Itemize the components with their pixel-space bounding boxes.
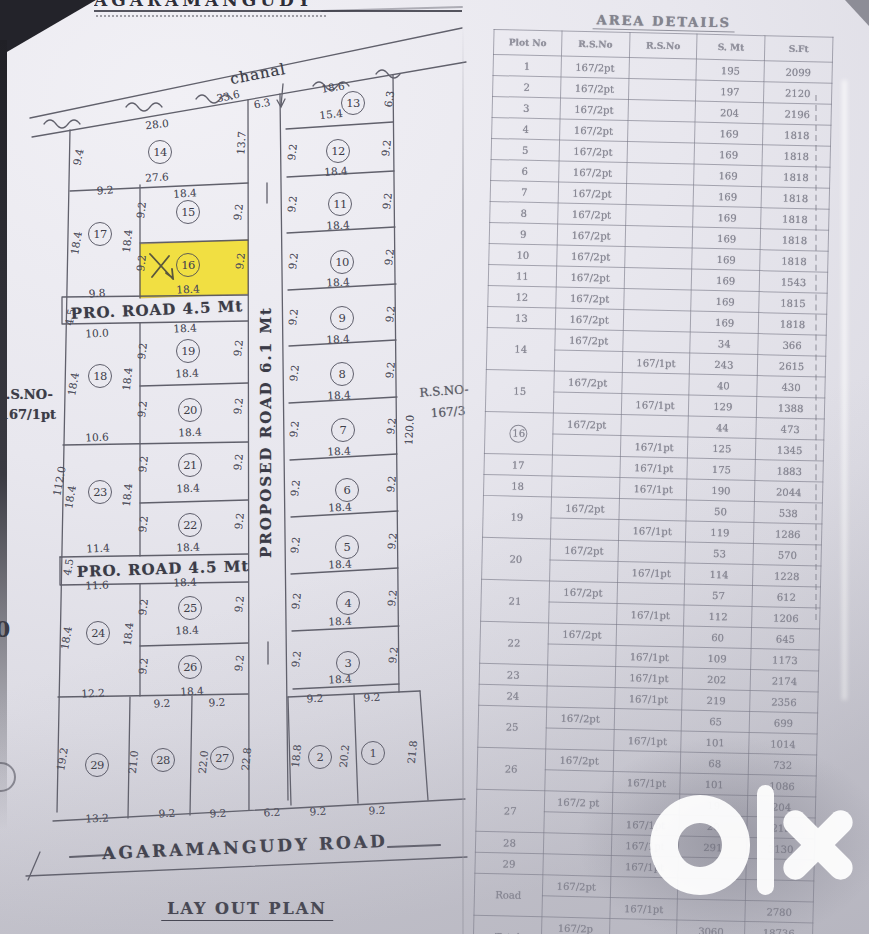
column-header: R.S.No: [561, 31, 629, 58]
plot-number-9: 9: [330, 306, 354, 330]
column-header: Plot No: [493, 30, 561, 57]
dimension-label: 18.4: [178, 425, 202, 438]
plot-number-13: 13: [341, 91, 365, 115]
dimension-label: 18.8: [289, 744, 303, 769]
dimension-label: 18.4: [326, 332, 350, 345]
plot-number-7: 7: [331, 418, 355, 442]
cell-plot-no: 19: [483, 495, 552, 539]
dimension-label: 9.2: [363, 691, 380, 704]
cell-sft: 1228: [753, 565, 821, 588]
dimension-label: 6.3: [382, 90, 396, 108]
cell-rs1: [625, 226, 693, 249]
cell-rs2: 167/2pt: [558, 161, 626, 184]
dimension-label: 9.2: [231, 397, 245, 415]
cell-plot-no: 4: [492, 117, 560, 140]
cell-plot-no: 29: [475, 852, 543, 875]
plot-number-6: 6: [335, 478, 359, 502]
plot-number-25: 25: [178, 596, 202, 620]
dimension-label: 21.8: [405, 740, 419, 765]
cell-rs2: 167/2pt: [559, 119, 627, 142]
cell-sft: 1206: [752, 607, 820, 630]
cell-rs1: [627, 142, 695, 165]
cell-sft: 1818: [761, 208, 829, 231]
dimension-label: 9.2: [385, 532, 399, 550]
cell-sft: 1818: [762, 145, 830, 168]
dimension-label: 18.4: [326, 275, 350, 288]
cell-rs1: [628, 79, 696, 102]
cell-rs2: 167/2pt: [550, 539, 618, 562]
cell-rs2: 167/2pt: [555, 308, 623, 331]
dimension-label: 10.6: [85, 430, 109, 443]
cell-smt: 169: [694, 143, 762, 166]
top-title-underline: [96, 15, 326, 17]
cell-plot-no: 7: [490, 180, 558, 203]
cell-rs2: 167/2pt: [559, 140, 627, 163]
cell-plot-no: 28: [475, 831, 543, 854]
dimension-label: 28.0: [145, 117, 170, 131]
cell-rs1: [616, 624, 684, 647]
cell-smt: 243: [690, 353, 758, 376]
plot-number-12: 12: [326, 139, 350, 163]
dimension-label: 9.2: [208, 696, 225, 709]
cell-smt: 219: [682, 689, 750, 712]
column-header: S.Ft: [765, 36, 833, 63]
dimension-label: 11.4: [86, 541, 110, 554]
dimension-label: 9.2: [285, 195, 299, 213]
plot-number-18: 18: [88, 364, 112, 388]
rs-no-left-line1: R.S.NO-: [0, 387, 53, 402]
cell-rs2: 167/2pt: [560, 77, 628, 100]
dimension-label: 9.2: [384, 417, 398, 435]
cell-rs2: 167/2pt: [549, 581, 617, 604]
dimension-label: 9.2: [231, 453, 245, 471]
cell-plot-no: 20: [482, 537, 551, 581]
cell-sft: 1173: [751, 649, 819, 672]
cell-smt: 112: [684, 605, 752, 628]
plot-number-1: 1: [361, 741, 385, 765]
cell-smt: 195: [696, 59, 764, 82]
cell-plot-no: 21: [481, 579, 550, 623]
dimension-label: 18.4: [328, 614, 352, 627]
cell-rs1: [620, 414, 688, 437]
dimension-label: 27.6: [145, 170, 169, 184]
cell-sft: 1883: [755, 460, 823, 483]
cell-plot-no: Road: [474, 873, 543, 917]
cell-rs2: 167/2pt: [548, 623, 616, 646]
cell-rs1: 167/1pt: [614, 687, 682, 710]
cell-plot-no: 9: [489, 222, 557, 245]
cell-rs1: [619, 498, 687, 521]
cell-rs2: [553, 392, 621, 415]
cell-rs1: 167/1pt: [618, 519, 686, 542]
dimension-label: 6.2: [263, 806, 280, 819]
cell-rs1: 167/1pt: [616, 603, 684, 626]
cell-smt: 169: [693, 206, 761, 229]
cell-smt: 197: [696, 80, 764, 103]
plot-number-14: 14: [148, 140, 172, 164]
cell-rs2: [551, 476, 619, 499]
cell-rs2: [549, 560, 617, 583]
dimension-label: 9.2: [309, 805, 326, 818]
cell-smt: 114: [685, 563, 753, 586]
cell-sft: 2099: [764, 61, 832, 84]
cell-smt: 119: [686, 521, 754, 544]
cell-smt: 34: [690, 332, 758, 355]
plot-number-29: 29: [85, 753, 109, 777]
cell-plot-no: 24: [479, 684, 547, 707]
cell-rs2: 167/2pt: [557, 245, 625, 268]
plot-number-10: 10: [330, 250, 354, 274]
dimension-label: 9.2: [383, 305, 397, 323]
dimension-label: 9.2: [386, 646, 400, 664]
cell-smt: 50: [686, 500, 754, 523]
cell-rs1: [623, 310, 691, 333]
cell-smt: 169: [691, 290, 759, 313]
cell-rs2: [552, 455, 620, 478]
cell-plot-no: 25: [478, 705, 547, 749]
cell-sft: 645: [751, 628, 819, 651]
cell-sft: 2120: [764, 82, 832, 105]
cell-sft: 1818: [762, 166, 830, 189]
cut-off-top-title: AGARAMANGUDY: [94, 0, 462, 13]
dimension-label: 9.2: [382, 248, 396, 266]
cell-smt: 60: [683, 626, 751, 649]
cell-rs1: [621, 372, 689, 395]
cell-rs1: [626, 163, 694, 186]
cell-sft: 1818: [760, 229, 828, 252]
dimension-label: 9.2: [287, 364, 301, 382]
cell-rs1: [617, 582, 685, 605]
dimension-label: 9.2: [287, 420, 301, 438]
cell-rs1: 167/1pt: [619, 477, 687, 500]
cell-plot-no: 12: [488, 285, 556, 308]
cell-rs1: [622, 331, 690, 354]
dimension-label: 9.2: [232, 512, 246, 530]
cell-rs2: [550, 518, 618, 541]
plot-number-15: 15: [176, 200, 200, 224]
cell-plot-no: 1: [493, 54, 561, 77]
cell-smt: 125: [688, 437, 756, 460]
cell-rs1: [624, 268, 692, 291]
cell-plot-no: 22: [480, 621, 549, 665]
dimension-label: 9.2: [286, 308, 300, 326]
dimension-label: 9.2: [368, 804, 385, 817]
dimension-label: 9.2: [96, 183, 113, 196]
layout-plan-title: LAY OUT PLAN: [161, 899, 333, 921]
cell-plot-no: 27: [476, 789, 545, 833]
cell-smt: 129: [689, 395, 757, 418]
cell-rs2: 167/2pt: [556, 287, 624, 310]
cell-plot-no: 2: [493, 75, 561, 98]
proposed-road-label: PROPOSED ROAD 6.1 Mt: [257, 306, 275, 558]
plot-number-2: 2: [308, 745, 332, 769]
plot-number-21: 21: [178, 453, 202, 477]
top-title-text: AGARAMANGUDY: [94, 0, 462, 12]
cell-plot-no: 6: [491, 159, 559, 182]
dimension-label: 9.2: [306, 692, 323, 705]
dimension-label: 9.2: [136, 598, 150, 616]
cell-rs2: 167/2pt: [546, 707, 614, 730]
cell-smt: 169: [692, 269, 760, 292]
cell-smt: 169: [693, 227, 761, 250]
cell-rs1: [623, 289, 691, 312]
dimension-label: 9.2: [134, 254, 148, 272]
dimension-label: 9.2: [288, 479, 302, 497]
cell-sft: 1345: [756, 439, 824, 462]
plot-number-16: 16: [176, 253, 200, 277]
dimension-label: 22.0: [196, 750, 210, 775]
cell-smt: 57: [684, 584, 752, 607]
cell-plot-no: 11: [488, 264, 556, 287]
dimension-label: 9.2: [232, 595, 246, 613]
dimension-label: 13.7: [234, 131, 248, 155]
cell-smt: 204: [695, 101, 763, 124]
page-edge-highlight: [842, 80, 847, 700]
cell-plot-no: 8: [490, 201, 558, 224]
cell-rs2: 167/2pt: [556, 266, 624, 289]
page-fold-crease: [462, 22, 464, 934]
cell-rs1: [626, 184, 694, 207]
rs-no-right-line2: 167/3: [430, 404, 465, 420]
cell-rs1: 167/1pt: [620, 456, 688, 479]
cell-smt: 109: [683, 647, 751, 670]
plot-number-23: 23: [88, 480, 112, 504]
cell-rs2: 167/2pt: [554, 371, 622, 394]
cell-sft: 612: [752, 586, 820, 609]
cell-rs2: 167/2pt: [561, 56, 629, 79]
dimension-label: 9.2: [136, 515, 150, 533]
dimension-label: 18.4: [324, 164, 348, 178]
cell-smt: 175: [687, 458, 755, 481]
cell-rs1: 167/1pt: [621, 393, 689, 416]
dimension-label: 18.4: [120, 229, 134, 254]
dimension-label: 9.2: [233, 252, 247, 270]
cell-rs1: [628, 100, 696, 123]
cell-rs1: 167/1pt: [620, 435, 688, 458]
cell-smt: 65: [682, 710, 750, 733]
cell-smt: 44: [688, 416, 756, 439]
cell-sft: 1818: [760, 250, 828, 273]
plot-number-8: 8: [330, 362, 354, 386]
dimension-label: 9.2: [231, 339, 245, 357]
dimension-label: 9.2: [232, 654, 246, 672]
dimension-label: 18.4: [176, 282, 200, 295]
plot-number-28: 28: [151, 748, 175, 772]
dimension-label: 18.4: [327, 444, 351, 457]
plot-number-26: 26: [178, 655, 202, 679]
cell-plot-no: 26: [477, 747, 546, 791]
dimension-label: 9.2: [285, 143, 299, 161]
cell-smt: 169: [695, 122, 763, 145]
dimension-label: 9.2: [135, 342, 149, 360]
plot-number-27: 27: [210, 746, 234, 770]
cell-plot-no: 3: [492, 96, 560, 119]
cell-plot-no: 16: [484, 411, 553, 455]
cell-rs1: [624, 247, 692, 270]
cell-rs1: 167/1pt: [615, 666, 683, 689]
plot-number-3: 3: [336, 651, 360, 675]
dimension-label: 21.0: [126, 750, 140, 775]
circled-plot-no: 16: [510, 424, 528, 442]
cell-rs2: [547, 686, 615, 709]
plot-number-20: 20: [178, 398, 202, 422]
cell-sft: 2196: [763, 103, 831, 126]
cell-sft: 570: [753, 544, 821, 567]
dimension-label: 20.2: [337, 744, 351, 769]
cell-rs2: 167/2pt: [558, 182, 626, 205]
dimension-label: 10.0: [85, 326, 109, 339]
rs-no-left-line2: 167/1pt: [0, 407, 56, 422]
dimension-label: 18.4: [328, 557, 352, 570]
dimension-label: 9.2: [380, 192, 394, 210]
plot-number-4: 4: [336, 591, 360, 615]
olx-watermark-icon: [645, 783, 860, 908]
cell-plot-no: 15: [485, 369, 554, 413]
dimension-label: 18.4: [176, 540, 200, 553]
dimension-label: 18.4: [176, 481, 200, 494]
dimension-label: 22.8: [239, 747, 253, 772]
dimension-label: 9.2: [379, 139, 393, 157]
cell-rs2: [552, 434, 620, 457]
cell-rs1: [618, 540, 686, 563]
dimension-label: 9.2: [288, 536, 302, 554]
cell-sft: 1286: [754, 523, 822, 546]
dimension-label: 18.4: [175, 366, 199, 379]
cell-plot-no: 17: [484, 453, 552, 476]
cell-rs2: 167/2pt: [555, 329, 623, 352]
cell-rs2: [547, 644, 615, 667]
cell-rs1: [625, 205, 693, 228]
plot-number-11: 11: [328, 192, 352, 216]
cell-rs1: [627, 121, 695, 144]
dimension-label: 9.2: [231, 203, 245, 221]
dimension-label: 9.2: [383, 361, 397, 379]
plot-number-24: 24: [86, 621, 110, 645]
plot-number-17: 17: [88, 222, 112, 246]
cell-sft: 1543: [759, 271, 827, 294]
dimension-label: 9.2: [289, 592, 303, 610]
cell-sft: 538: [754, 502, 822, 525]
dimension-label: 9.2: [289, 650, 303, 668]
dimension-label: 9.2: [385, 589, 399, 607]
dimension-label: 18.4: [327, 388, 351, 401]
dimension-label: 18.4: [328, 500, 352, 513]
dimension-label: 12.2: [81, 686, 105, 699]
dimension-label: 9.2: [209, 807, 226, 820]
cell-smt: 40: [689, 374, 757, 397]
cell-rs2: [554, 350, 622, 373]
column-header: S. Mt: [697, 34, 765, 61]
dimension-label: 9.2: [158, 807, 175, 820]
dimension-label: 9.2: [136, 657, 150, 675]
dimension-label: 9.2: [153, 697, 170, 710]
cell-rs2: 167/2pt: [553, 413, 621, 436]
scanned-layout-plan-page: 28.027.69.413.733.66.318.615.46.39.29.21…: [0, 0, 869, 934]
cell-plot-no: 23: [479, 663, 547, 686]
plot-number-5: 5: [335, 535, 359, 559]
cell-rs2: [547, 665, 615, 688]
cell-rs2: [548, 602, 616, 625]
cell-plot-no: 10: [489, 243, 557, 266]
cell-sft: 1818: [761, 187, 829, 210]
dimension-label: 18.4: [175, 623, 199, 636]
dimension-label: 13.2: [85, 811, 109, 824]
cell-smt: 169: [693, 185, 761, 208]
cell-rs2: 167/2pt: [551, 497, 619, 520]
cell-smt: 53: [685, 542, 753, 565]
cell-rs1: [629, 58, 697, 81]
cell-sft: 1818: [763, 124, 831, 147]
dimension-label: 9.2: [136, 455, 150, 473]
cell-plot-no: Total: [473, 915, 542, 934]
dimension-label: 15.4: [319, 107, 344, 121]
dimension-label: 18.4: [180, 684, 204, 697]
plot-number-22: 22: [178, 513, 202, 537]
page-margin-dashes: [815, 95, 817, 620]
cell-smt: 169: [692, 248, 760, 271]
cell-smt: 169: [691, 311, 759, 334]
cell-plot-no: 5: [491, 138, 559, 161]
cell-rs1: [614, 708, 682, 731]
dimension-label: 18.4: [173, 321, 197, 334]
cell-smt: 190: [687, 479, 755, 502]
dimension-label: 9.2: [134, 201, 148, 219]
dimension-label: 18.4: [173, 186, 197, 200]
dimension-label: 9.8: [88, 286, 105, 299]
dimension-label: 9.2: [384, 475, 398, 493]
cell-rs2: 167/2pt: [557, 203, 625, 226]
cell-rs1: 167/1pt: [622, 352, 690, 375]
dimension-label: 18.4: [120, 367, 134, 392]
cell-plot-no: 14: [486, 327, 555, 371]
photo-edge-shadow: [0, 40, 7, 830]
cell-sft: 2044: [755, 481, 823, 504]
column-header: R.S.No: [629, 33, 697, 60]
plot-number-19: 19: [176, 339, 200, 363]
dimension-label: 9.2: [135, 400, 149, 418]
cell-rs1: 167/1pt: [617, 561, 685, 584]
cell-sft: 699: [749, 711, 817, 734]
cell-plot-no: 18: [483, 474, 551, 497]
cell-sft: 2356: [750, 690, 818, 713]
cell-rs2: 167/2pt: [560, 98, 628, 121]
cell-rs2: 167/2pt: [557, 224, 625, 247]
dimension-label: 18.4: [326, 218, 350, 231]
cell-smt: 202: [683, 668, 751, 691]
cell-sft: 2174: [750, 669, 818, 692]
cell-plot-no: 13: [487, 306, 555, 329]
cell-rs1: 167/1pt: [615, 645, 683, 668]
dimension-label: 120.0: [402, 415, 416, 446]
dimension-label: 9.2: [286, 252, 300, 270]
dimension-label: 18.4: [121, 622, 135, 647]
dimension-label: 18.4: [120, 483, 134, 508]
cell-smt: 169: [694, 164, 762, 187]
